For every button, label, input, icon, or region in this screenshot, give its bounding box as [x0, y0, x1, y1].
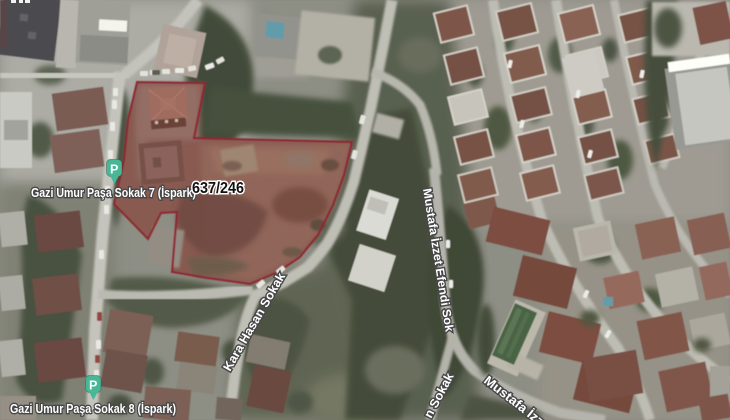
svg-text:Gazi Umur Paşa Sokak 7 (İspark: Gazi Umur Paşa Sokak 7 (İspark) — [31, 185, 196, 200]
svg-text:P: P — [89, 379, 97, 393]
svg-text:Gazi Umur Paşa Sokak 8 (İspark: Gazi Umur Paşa Sokak 8 (İspark) — [10, 401, 176, 416]
svg-text:P: P — [110, 163, 118, 177]
svg-text:637/246: 637/246 — [192, 180, 244, 197]
